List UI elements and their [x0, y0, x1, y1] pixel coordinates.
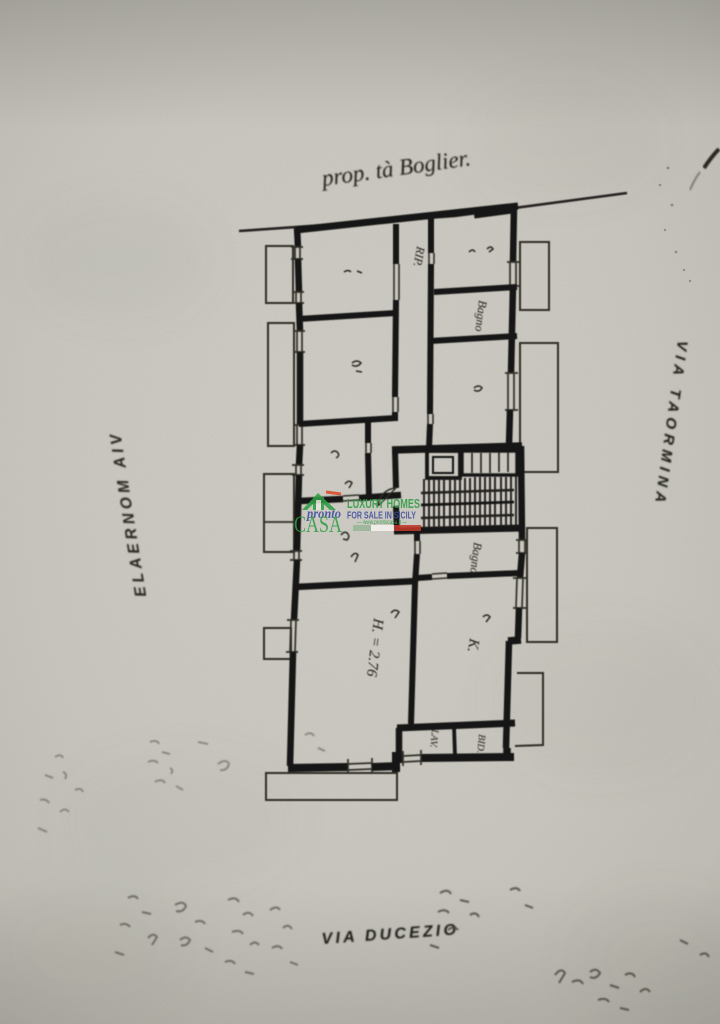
svg-text:K.: K.: [464, 636, 482, 653]
svg-text:CASA: CASA: [294, 512, 342, 537]
svg-text:LUXURY HOMES: LUXURY HOMES: [347, 496, 420, 511]
svg-text:BID.: BID.: [474, 734, 487, 754]
svg-text:LAV.: LAV.: [427, 728, 440, 749]
